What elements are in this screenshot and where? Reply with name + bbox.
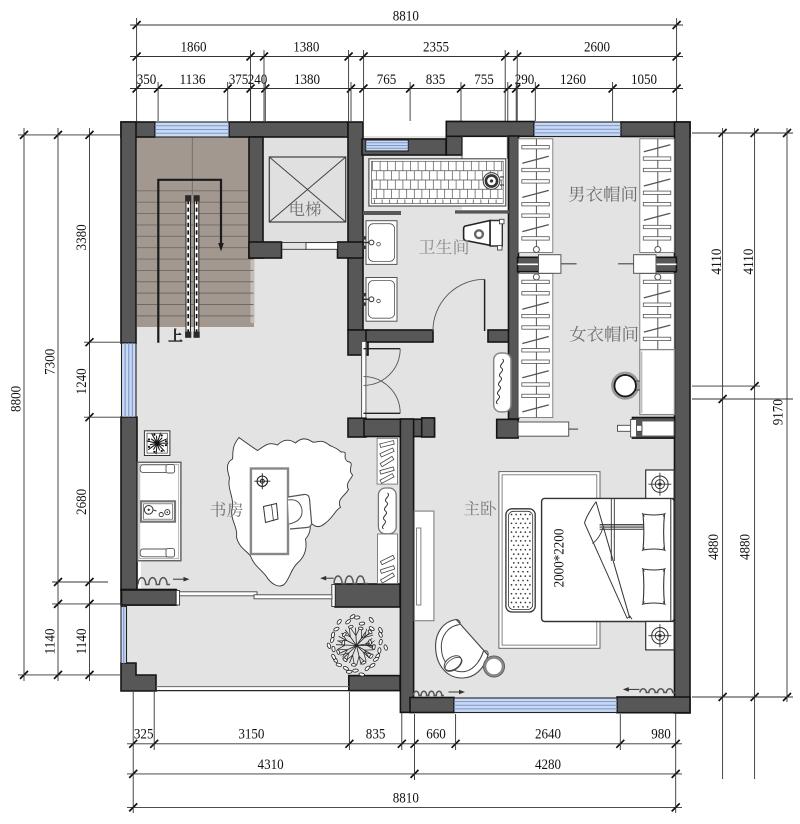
svg-text:4110: 4110 bbox=[709, 249, 725, 275]
svg-text:2355: 2355 bbox=[423, 39, 449, 55]
svg-text:835: 835 bbox=[366, 726, 386, 742]
svg-text:4880: 4880 bbox=[737, 534, 753, 560]
svg-text:375: 375 bbox=[229, 72, 249, 88]
svg-text:8810: 8810 bbox=[393, 790, 419, 806]
svg-text:1140: 1140 bbox=[42, 628, 58, 654]
svg-text:350: 350 bbox=[137, 72, 157, 88]
svg-text:8800: 8800 bbox=[8, 386, 24, 412]
svg-text:3150: 3150 bbox=[238, 726, 264, 742]
svg-text:7300: 7300 bbox=[42, 349, 58, 375]
svg-text:1240: 1240 bbox=[74, 368, 90, 394]
svg-text:4280: 4280 bbox=[535, 757, 561, 773]
svg-text:4880: 4880 bbox=[706, 534, 722, 560]
svg-text:1380: 1380 bbox=[294, 72, 320, 88]
svg-text:835: 835 bbox=[426, 72, 446, 88]
svg-text:1380: 1380 bbox=[293, 39, 319, 55]
svg-text:4310: 4310 bbox=[258, 757, 284, 773]
svg-text:325: 325 bbox=[134, 726, 154, 742]
svg-text:2640: 2640 bbox=[535, 726, 561, 742]
svg-text:980: 980 bbox=[651, 726, 671, 742]
svg-text:4110: 4110 bbox=[741, 249, 757, 275]
svg-text:1136: 1136 bbox=[179, 72, 206, 88]
svg-text:1860: 1860 bbox=[180, 39, 206, 55]
svg-text:1050: 1050 bbox=[631, 72, 657, 88]
svg-text:660: 660 bbox=[426, 726, 446, 742]
svg-text:1140: 1140 bbox=[74, 628, 90, 654]
svg-text:2600: 2600 bbox=[584, 39, 610, 55]
svg-text:755: 755 bbox=[474, 72, 494, 88]
svg-text:765: 765 bbox=[377, 72, 397, 88]
svg-text:8810: 8810 bbox=[393, 8, 419, 24]
svg-text:3380: 3380 bbox=[74, 224, 90, 250]
svg-text:2680: 2680 bbox=[74, 489, 90, 515]
svg-text:9170: 9170 bbox=[770, 399, 786, 425]
svg-text:1260: 1260 bbox=[560, 72, 586, 88]
svg-text:2000*2200: 2000*2200 bbox=[551, 529, 567, 588]
